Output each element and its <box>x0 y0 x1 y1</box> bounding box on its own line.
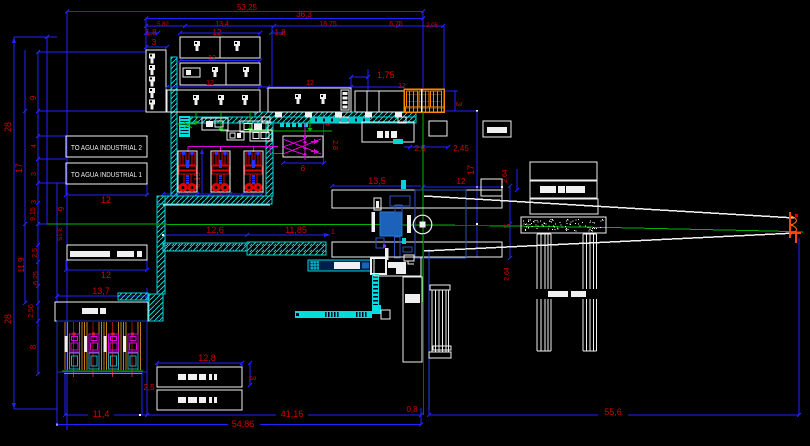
svg-text:1,8: 1,8 <box>274 28 286 37</box>
svg-text:13,4: 13,4 <box>215 21 229 28</box>
svg-text:54,86: 54,86 <box>232 419 255 429</box>
svg-text:3: 3 <box>31 172 38 176</box>
svg-text:12: 12 <box>306 80 314 87</box>
svg-text:13,7: 13,7 <box>92 286 110 296</box>
svg-text:28: 28 <box>3 314 13 324</box>
svg-text:11,9: 11,9 <box>17 257 26 273</box>
svg-text:8: 8 <box>29 344 38 349</box>
svg-text:TO AGUA INDUSTRIAL 1: TO AGUA INDUSTRIAL 1 <box>71 172 142 179</box>
svg-text:1,8: 1,8 <box>145 28 157 37</box>
svg-text:17: 17 <box>14 163 24 173</box>
svg-text:2,5: 2,5 <box>414 144 426 153</box>
svg-text:12: 12 <box>101 270 111 280</box>
svg-text:11,4: 11,4 <box>93 409 110 419</box>
svg-text:18,75: 18,75 <box>319 21 337 28</box>
svg-text:55,6: 55,6 <box>604 407 622 417</box>
svg-text:13,5: 13,5 <box>368 176 386 186</box>
svg-text:6,75: 6,75 <box>389 21 403 28</box>
svg-text:3: 3 <box>31 200 38 204</box>
svg-text:12: 12 <box>457 177 466 186</box>
svg-text:12: 12 <box>101 195 111 205</box>
svg-text:2,64: 2,64 <box>502 169 509 183</box>
svg-text:2,64: 2,64 <box>504 267 511 281</box>
svg-text:12: 12 <box>213 28 222 37</box>
svg-text:2,05: 2,05 <box>426 23 438 29</box>
svg-text:36,3: 36,3 <box>296 10 312 19</box>
svg-text:53,25: 53,25 <box>237 3 258 12</box>
svg-text:12,8: 12,8 <box>198 353 216 363</box>
svg-text:12: 12 <box>206 80 214 87</box>
svg-text:1: 1 <box>331 229 335 236</box>
svg-text:2,45: 2,45 <box>453 144 469 153</box>
svg-text:6,25: 6,25 <box>33 271 40 285</box>
svg-text:9: 9 <box>29 95 38 100</box>
svg-text:2,8: 2,8 <box>331 140 338 150</box>
svg-text:1,75: 1,75 <box>377 70 395 80</box>
svg-text:2,5: 2,5 <box>32 248 39 258</box>
svg-text:2,5: 2,5 <box>143 383 155 392</box>
svg-text:0,8: 0,8 <box>406 405 418 414</box>
svg-text:12: 12 <box>208 55 216 62</box>
svg-text:TO AGUA INDUSTRIAL 2: TO AGUA INDUSTRIAL 2 <box>71 145 142 152</box>
svg-text:9,15: 9,15 <box>30 207 37 221</box>
svg-text:17: 17 <box>466 165 476 175</box>
svg-text:28: 28 <box>3 122 13 132</box>
svg-text:6: 6 <box>56 207 65 212</box>
svg-text:3: 3 <box>454 102 463 107</box>
svg-text:5,82: 5,82 <box>157 22 169 28</box>
svg-text:3,15: 3,15 <box>55 227 62 241</box>
svg-text:41,16: 41,16 <box>281 409 304 419</box>
svg-text:11,85: 11,85 <box>285 225 307 235</box>
svg-text:3: 3 <box>152 38 157 47</box>
svg-text:4: 4 <box>31 144 38 148</box>
svg-text:12,6: 12,6 <box>206 225 224 235</box>
svg-text:6: 6 <box>301 164 306 173</box>
svg-text:2,56: 2,56 <box>28 304 35 318</box>
svg-text:3: 3 <box>248 376 257 381</box>
